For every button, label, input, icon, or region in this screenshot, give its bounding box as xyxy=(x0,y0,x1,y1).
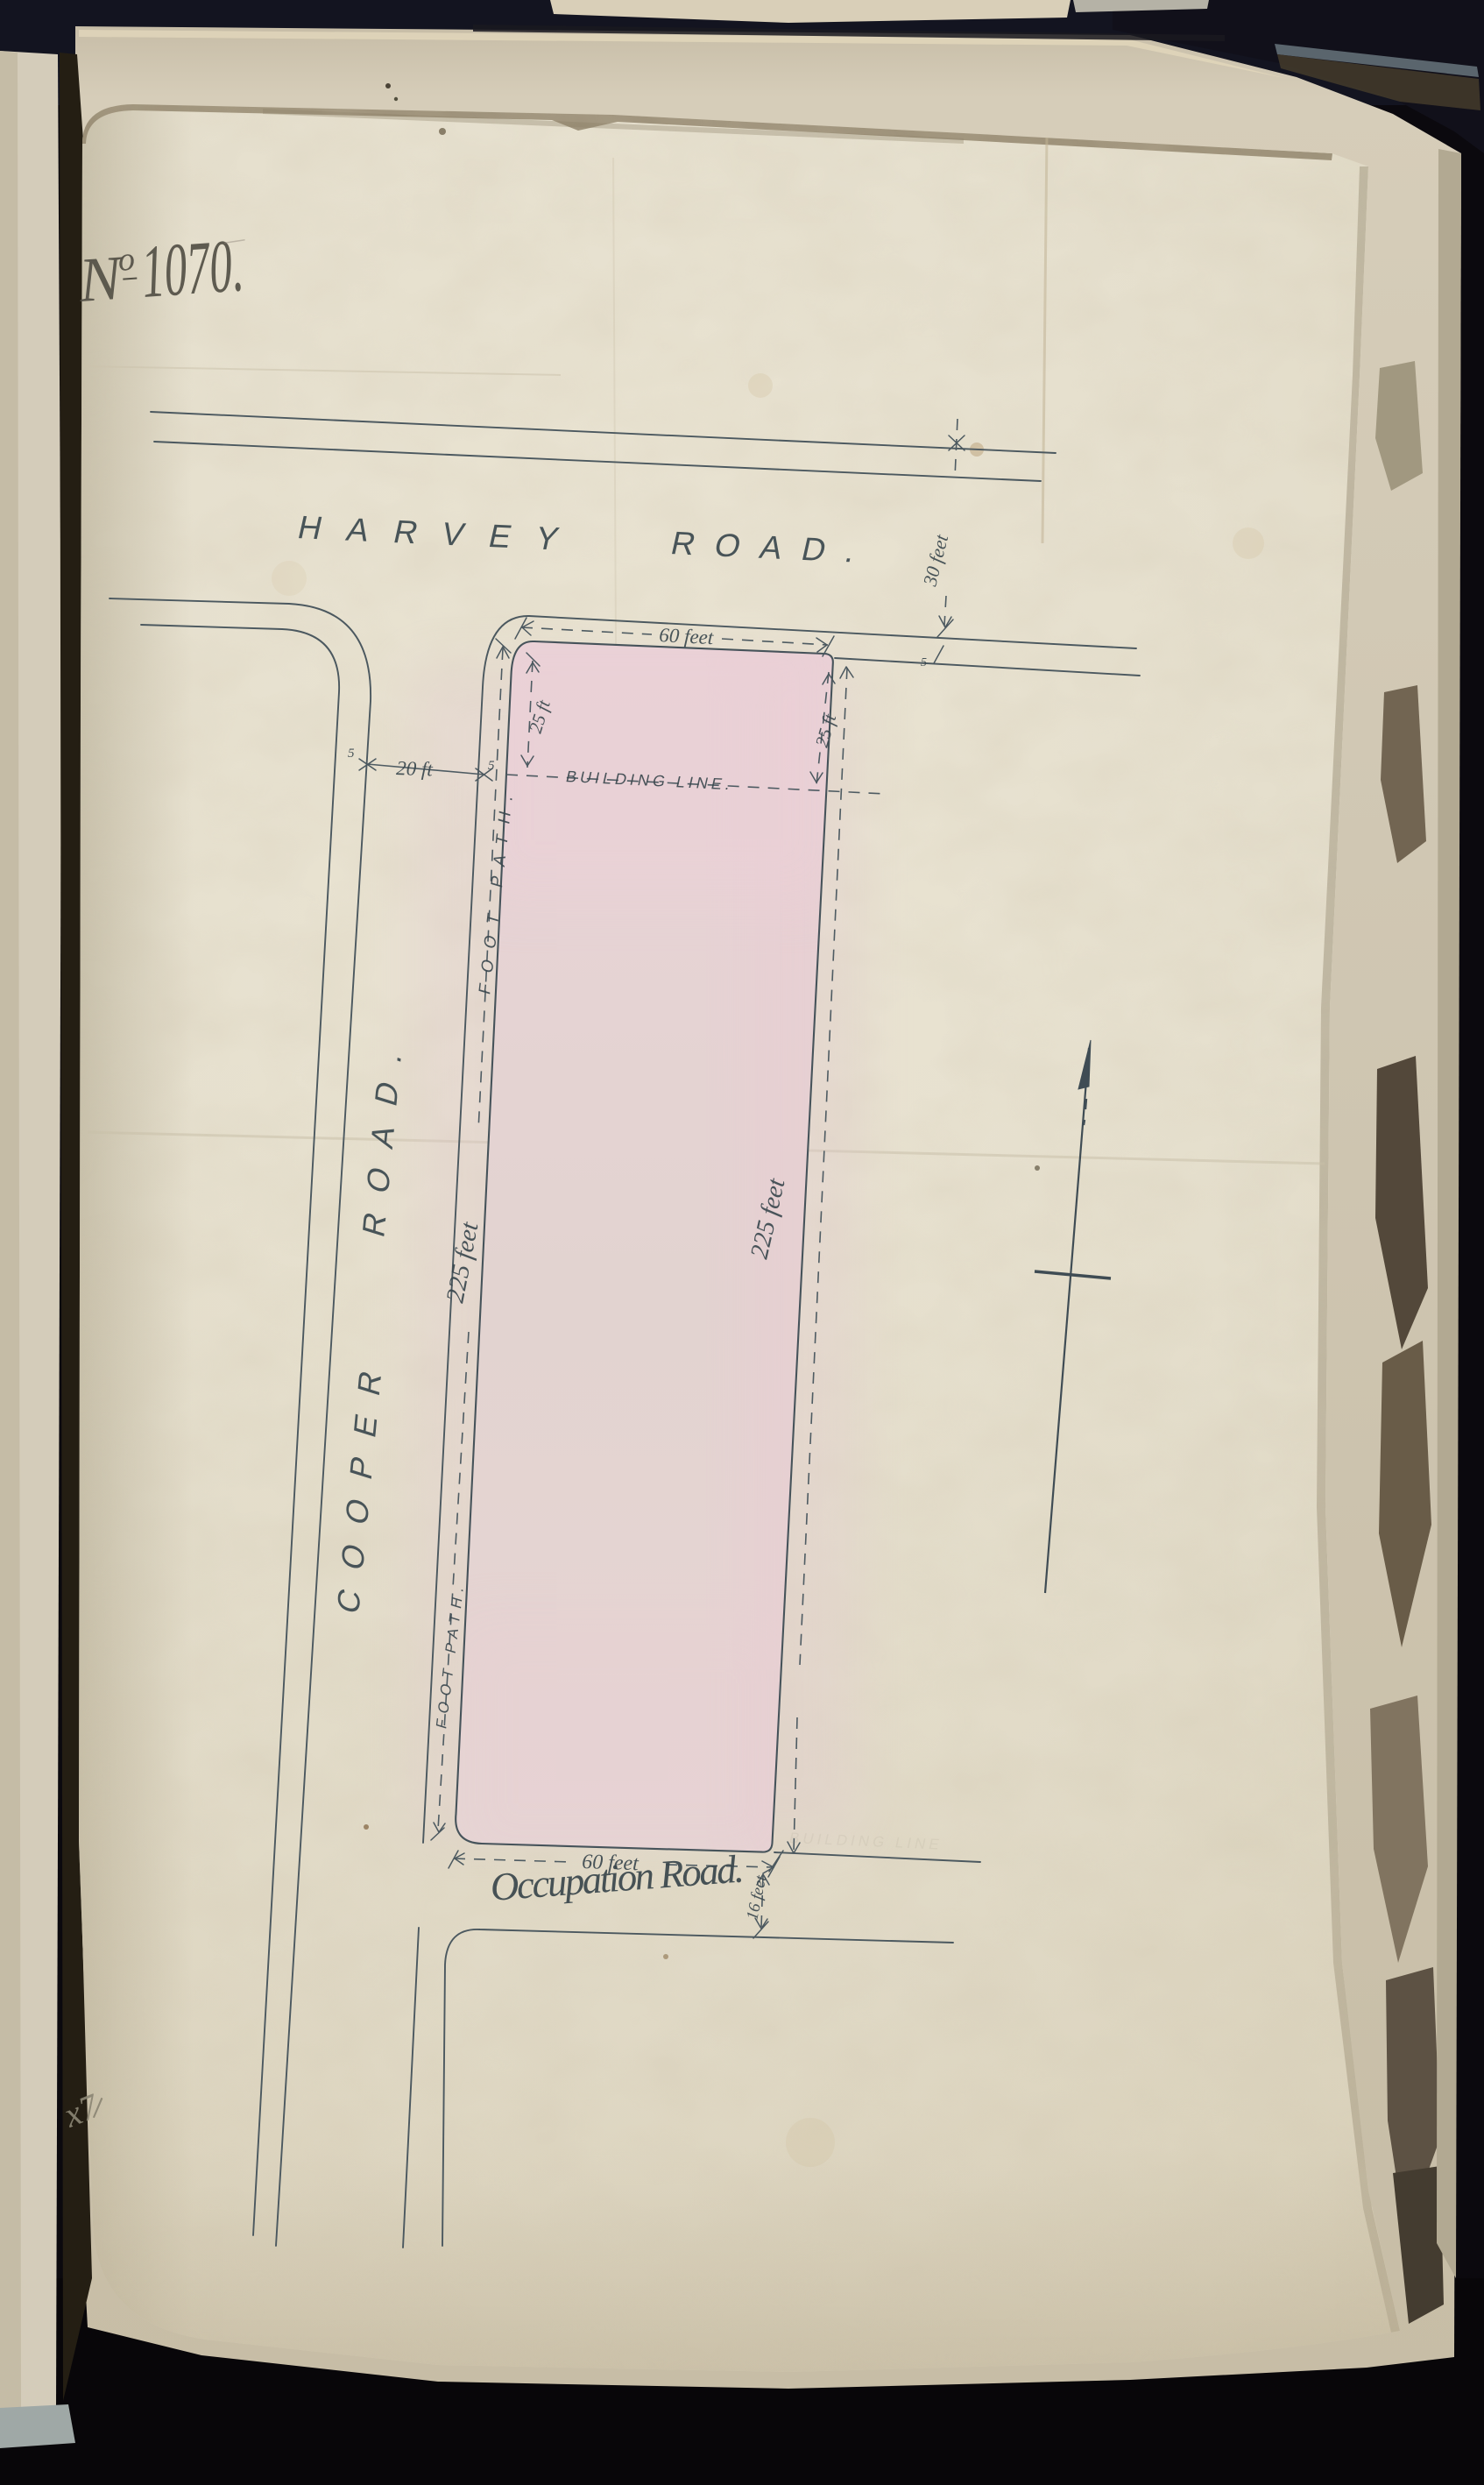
svg-text:5: 5 xyxy=(488,759,495,773)
svg-text:5: 5 xyxy=(348,747,355,761)
svg-text:60 feet: 60 feet xyxy=(582,1851,640,1875)
svg-text:60 feet: 60 feet xyxy=(659,624,715,648)
svg-text:1070.: 1070. xyxy=(139,224,246,314)
svg-text:20 ft: 20 ft xyxy=(396,757,434,780)
svg-text:o: o xyxy=(117,241,136,279)
svg-text:5: 5 xyxy=(921,656,927,669)
